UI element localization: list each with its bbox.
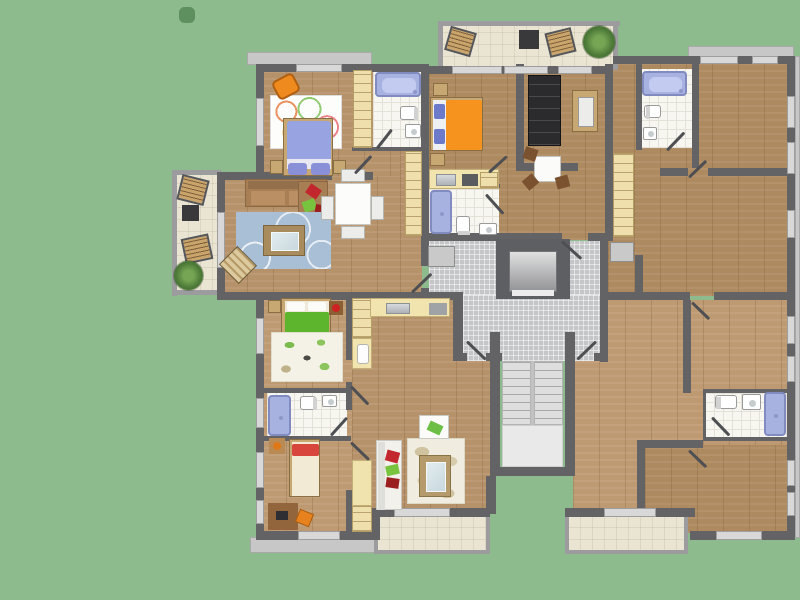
nightstand-lamp	[269, 438, 285, 454]
kitchen-shelf	[352, 298, 372, 338]
shower-drain	[440, 212, 444, 216]
window	[256, 452, 264, 488]
desk	[572, 90, 598, 132]
bed-pillow	[292, 444, 319, 456]
balcony-top-rim	[438, 21, 443, 70]
toilet-tank	[414, 108, 418, 120]
window	[256, 500, 264, 524]
nightstand	[268, 300, 281, 313]
coffee-table	[419, 455, 451, 497]
wardrobe-shelf	[352, 506, 372, 532]
shower-drain	[774, 414, 778, 418]
double-bed-blue	[283, 118, 333, 176]
wall	[600, 238, 608, 362]
wall	[490, 332, 500, 476]
stove	[462, 174, 478, 186]
coffee-table	[263, 225, 305, 256]
wall	[703, 437, 789, 441]
wall	[637, 440, 703, 448]
decor-table	[329, 301, 343, 315]
toilet	[300, 396, 316, 410]
wall	[605, 64, 613, 241]
kitchen-cabinet	[352, 338, 372, 369]
elevator-sill	[512, 290, 554, 296]
bathtub	[642, 71, 687, 96]
window	[394, 508, 450, 517]
bathroom-sink	[742, 394, 761, 410]
glass-top	[271, 232, 299, 251]
cushion-green	[427, 421, 444, 436]
window	[787, 96, 795, 128]
toilet	[400, 106, 417, 120]
shower	[268, 395, 291, 436]
terrace-right-rim	[684, 512, 688, 554]
window	[452, 66, 502, 74]
bed-pillow	[288, 163, 307, 175]
wall	[421, 64, 429, 241]
pillow-red	[385, 450, 400, 464]
laptop	[276, 511, 288, 520]
flowers-red	[332, 304, 340, 312]
pillow-dark-red	[385, 477, 399, 489]
dining-chair	[321, 196, 334, 220]
window	[256, 398, 264, 428]
window	[256, 98, 264, 146]
tub-basin	[382, 78, 416, 93]
ledge-right-edge	[795, 56, 800, 538]
shower	[430, 190, 452, 234]
hall-closet	[405, 151, 422, 236]
bed-pillow	[434, 104, 445, 119]
bed-blanket	[287, 121, 331, 161]
wall	[256, 64, 429, 72]
nightstand	[430, 153, 445, 166]
wall	[372, 508, 380, 540]
dining-table	[335, 183, 371, 225]
tub-drain	[413, 90, 417, 94]
window	[558, 66, 592, 74]
floor-plan	[0, 0, 800, 600]
bed-pillow	[311, 163, 330, 175]
terrace-right-rim	[565, 512, 569, 554]
balcony-top-rim	[438, 21, 620, 26]
side-table-white	[419, 415, 449, 439]
balcony-table	[182, 205, 199, 221]
elevator-cab	[509, 251, 557, 292]
wall	[565, 332, 575, 476]
staircase	[500, 361, 565, 469]
stair-flight-left	[502, 361, 531, 425]
toilet-tank	[716, 397, 721, 409]
bed-pillow	[308, 302, 326, 311]
wall	[714, 292, 794, 300]
wall	[683, 300, 691, 393]
shower	[764, 392, 786, 436]
wardrobe	[353, 70, 372, 148]
terrace-left-rim	[486, 512, 490, 554]
lamp-orange	[273, 442, 281, 450]
toilet	[644, 105, 661, 118]
nightstand	[270, 160, 283, 174]
toilet-tank	[646, 106, 650, 119]
desk-top	[578, 97, 594, 127]
dining-chair	[341, 226, 365, 239]
wall	[703, 389, 706, 441]
dining-chair	[341, 169, 365, 182]
potted-plant	[174, 261, 203, 290]
kitchen-sink	[386, 303, 410, 314]
window	[752, 56, 778, 64]
stair-flight-right	[534, 361, 563, 425]
wall	[690, 531, 716, 540]
nightstand	[433, 83, 448, 96]
window	[716, 531, 762, 540]
toilet-tank	[458, 231, 470, 235]
window	[787, 316, 795, 344]
double-bed-orange	[430, 97, 483, 151]
toilet	[456, 216, 470, 234]
sofa-back	[378, 442, 385, 510]
terrace-right-rim	[565, 550, 688, 554]
kitchen-shelf	[480, 172, 498, 188]
window	[787, 210, 795, 238]
floor-hall-lower	[463, 295, 602, 361]
window	[296, 64, 342, 72]
utility-cabinet	[428, 246, 455, 267]
toilet-tank	[313, 398, 317, 410]
potted-plant	[583, 26, 615, 58]
balcony-left-rim	[172, 290, 221, 295]
window	[298, 531, 340, 540]
wall	[516, 64, 524, 164]
terrace-left-rim	[374, 550, 490, 554]
toilet	[715, 395, 737, 409]
stove	[429, 303, 447, 315]
wardrobe-dark	[528, 75, 561, 146]
shower-drain	[279, 416, 283, 420]
sink-bowl	[411, 129, 417, 135]
pillow-green	[385, 464, 400, 476]
wall	[635, 255, 643, 300]
corridor-closet	[613, 153, 634, 237]
wall	[263, 388, 351, 393]
balcony-left-rim	[172, 170, 221, 175]
desk	[268, 503, 298, 530]
wall	[453, 292, 463, 361]
balcony-table	[519, 30, 539, 49]
kitchen-counter	[370, 298, 450, 317]
rug-leaves	[271, 332, 343, 382]
window	[787, 460, 795, 486]
bathroom-sink	[479, 223, 497, 235]
bed-blanket	[446, 100, 482, 150]
sink-bowl	[648, 131, 654, 137]
tub-basin	[649, 77, 682, 92]
bed-pillow	[434, 129, 445, 144]
sink-bowl	[328, 399, 334, 405]
kids-bed	[289, 439, 320, 497]
kitchen-sink	[436, 174, 456, 186]
bush	[179, 7, 195, 23]
sofa-white	[376, 440, 402, 510]
window	[787, 492, 795, 516]
wall	[656, 508, 695, 517]
wall	[708, 168, 794, 176]
wall	[692, 64, 699, 168]
utility-cabinet	[610, 242, 634, 262]
window	[787, 142, 795, 174]
window	[604, 508, 656, 517]
floor-terrace-left	[377, 514, 487, 552]
wall	[608, 292, 690, 300]
wall	[486, 476, 496, 514]
tub-drain	[679, 89, 683, 93]
sofa-cushion	[250, 190, 286, 206]
window	[256, 318, 264, 354]
wall	[637, 447, 645, 508]
bed-pillow	[287, 302, 305, 311]
window	[700, 56, 738, 64]
dining-chair	[371, 196, 384, 220]
balcony-door	[504, 66, 548, 74]
sink-basin	[357, 344, 369, 364]
glass-top	[426, 462, 446, 492]
stair-landing	[502, 425, 563, 467]
floor-terrace-right	[568, 514, 685, 552]
bathtub	[375, 72, 421, 97]
sink-bowl	[486, 227, 492, 233]
window	[787, 356, 795, 382]
bathroom-sink	[405, 124, 421, 138]
wardrobe-yellow	[352, 460, 372, 506]
stair-divider	[531, 361, 534, 425]
bathroom-sink	[322, 395, 337, 407]
wall	[660, 168, 688, 176]
bathroom-sink	[643, 127, 657, 140]
sink-bowl	[749, 400, 756, 407]
wall	[450, 508, 490, 517]
elevator-shaft	[496, 239, 570, 299]
wall	[565, 508, 604, 517]
